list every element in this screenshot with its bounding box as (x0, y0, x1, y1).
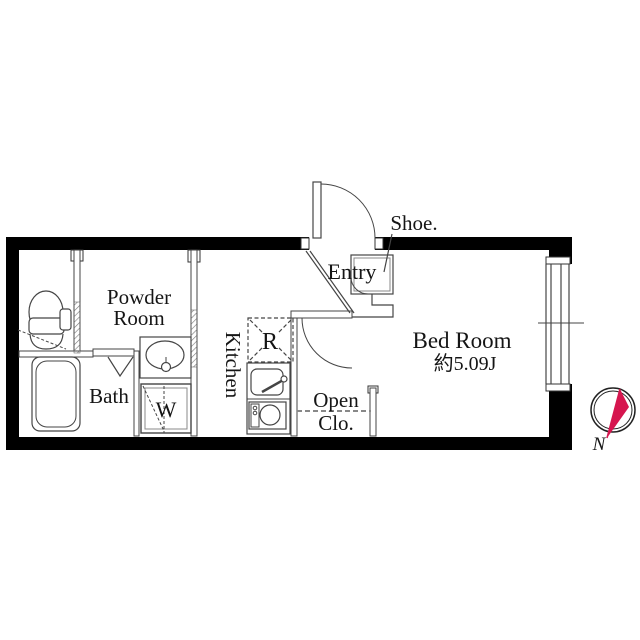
entry-door (313, 182, 375, 238)
bedroom-step-line (352, 294, 393, 317)
bathtub-icon (32, 357, 80, 431)
shoe-cabinet-label: Shoe. (390, 211, 437, 235)
compass: N (591, 388, 635, 455)
stove-icon (249, 402, 286, 429)
north-label: N (592, 434, 607, 455)
washbasin-icon (139, 337, 191, 378)
washer-label: W (156, 397, 177, 422)
bath-label: Bath (89, 384, 129, 408)
bedroom-size-label: 約5.09J (434, 352, 497, 375)
open-closet-label-line1: Open (313, 388, 359, 412)
floor-plan-canvas: N Powder Room Bath Kitchen Entry Shoe. B… (0, 0, 640, 640)
powder-room-label-line2: Room (113, 306, 164, 330)
bedroom-label: Bed Room (412, 328, 511, 353)
bedroom-door-arc (302, 318, 352, 368)
floor-plan: N Powder Room Bath Kitchen Entry Shoe. B… (0, 0, 640, 640)
kitchen-label: Kitchen (221, 332, 245, 399)
refrigerator-label: R (262, 329, 278, 355)
open-closet-label-line2: Clo. (318, 411, 354, 435)
toilet-icon (18, 291, 71, 349)
sink-icon (251, 369, 287, 395)
kitchen-counter (247, 363, 290, 434)
bath-door-icon (108, 357, 133, 376)
entry-label: Entry (328, 259, 377, 284)
window (538, 264, 584, 384)
